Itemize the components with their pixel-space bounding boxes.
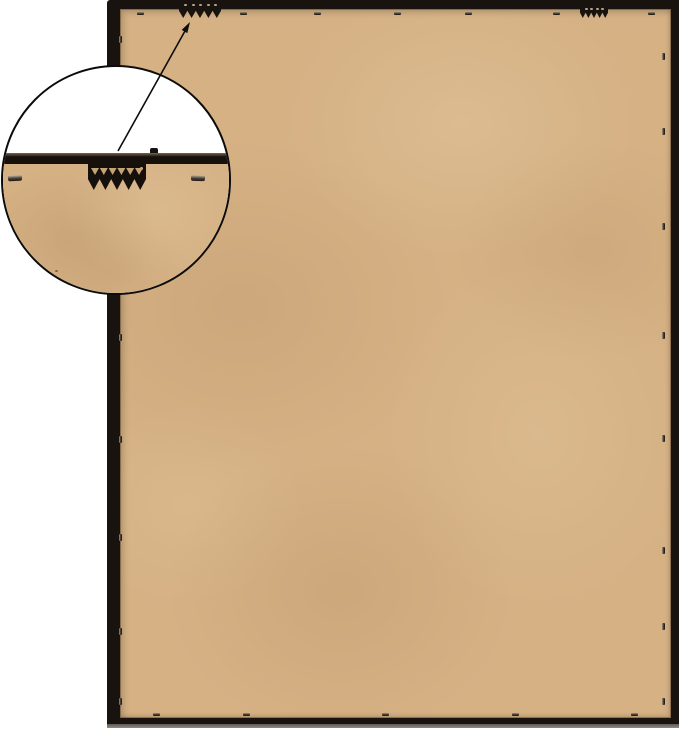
scallop-cutout (135, 168, 143, 175)
magnified-rail-nub (150, 148, 158, 153)
magnified-retainer-point (191, 175, 205, 181)
scallop-cutout (117, 168, 125, 175)
scallop-cutout (100, 168, 108, 175)
detail-callout-circle (1, 65, 231, 295)
product-photo (0, 0, 679, 730)
right-sawtooth-hanger (580, 6, 608, 18)
rivet-dot (214, 4, 217, 6)
magnified-frame-rail (3, 153, 229, 164)
rivet-dot (199, 4, 202, 6)
rivet-dot (585, 8, 588, 10)
scallop-cutout (91, 168, 99, 175)
scallop-cutout (109, 168, 117, 175)
rivet-dot (192, 4, 195, 6)
magnified-retainer-point (8, 175, 22, 182)
rivet-dot (590, 8, 593, 10)
rivet-dot (601, 8, 604, 10)
scallop-cutout (126, 168, 134, 175)
board-speck (55, 270, 58, 272)
rivet-dot (184, 4, 187, 6)
left-sawtooth-hanger (179, 2, 221, 18)
board-speck (70, 288, 73, 290)
rivet-dot (596, 8, 599, 10)
rivet-dot (207, 4, 210, 6)
